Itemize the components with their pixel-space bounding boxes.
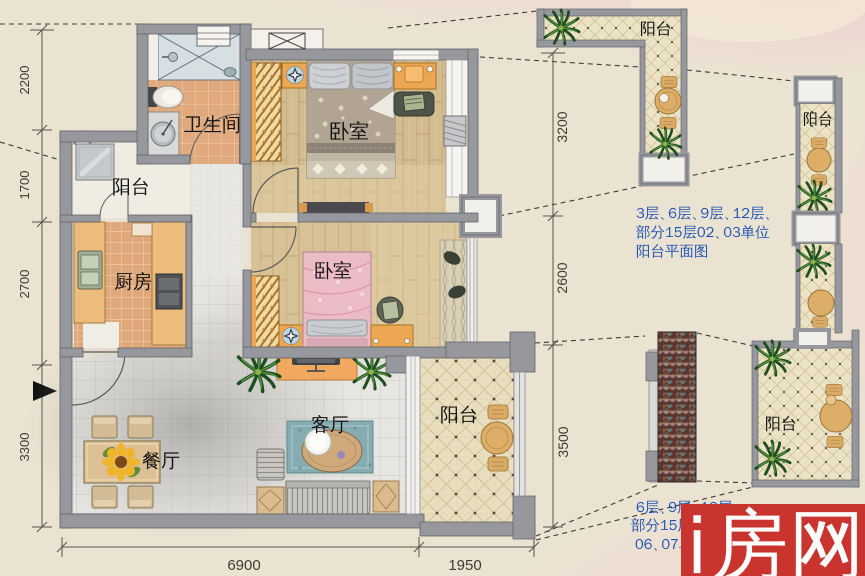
svg-text:2200: 2200: [17, 66, 32, 95]
svg-text:3500: 3500: [555, 426, 571, 457]
svg-text:2600: 2600: [554, 262, 570, 293]
svg-text:6900: 6900: [227, 557, 260, 574]
svg-text:1700: 1700: [17, 171, 32, 200]
svg-text:3200: 3200: [554, 111, 570, 142]
svg-text:2700: 2700: [17, 270, 32, 299]
svg-text:1950: 1950: [448, 557, 481, 574]
